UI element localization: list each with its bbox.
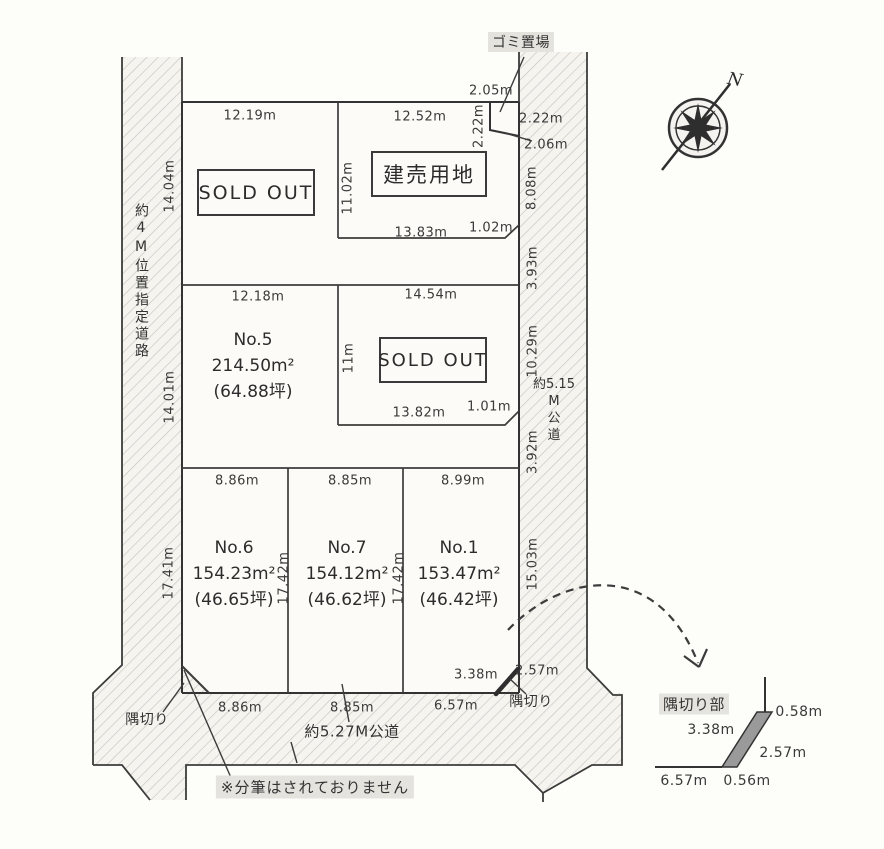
right-road-label-line2: M xyxy=(548,393,559,410)
sold-out-box-2: SOLD OUT xyxy=(379,337,487,383)
tateuri-box: 建売用地 xyxy=(371,151,487,197)
detail-dim-left: 3.38m xyxy=(687,722,734,738)
dim-right-edge-upper: 8.08m xyxy=(525,166,540,210)
detail-dim-top-right: 0.58m xyxy=(775,704,822,720)
right-road-label: 約5.15 M 公 道 xyxy=(533,376,575,444)
dim-no7-left: 17.42m xyxy=(277,552,292,605)
lot-no1-tsubo: (46.42坪) xyxy=(418,587,501,613)
dim-garbage-right: 2.22m xyxy=(519,112,563,127)
detail-dim-diagonal: 2.57m xyxy=(759,745,806,761)
lot-no7-tsubo: (46.62坪) xyxy=(306,587,389,613)
dim-no6-left: 17.41m xyxy=(162,547,177,600)
lot-no6-info: No.6 154.23m² (46.65坪) xyxy=(193,535,276,613)
dim-top-right-width: 12.52m xyxy=(394,110,447,125)
detail-title: 隅切り部 xyxy=(659,694,729,715)
right-road-label-line1: 約5.15 xyxy=(533,376,575,393)
lot-no5-area: 214.50m² xyxy=(212,353,295,379)
dim-mid-right-left: 11m xyxy=(342,343,357,374)
dim-no1-bottom: 6.57m xyxy=(434,699,478,714)
dim-garbage-bottom: 2.06m xyxy=(524,138,568,153)
dim-no6-top: 8.86m xyxy=(215,474,259,489)
dim-garbage-left: 2.22m xyxy=(472,104,487,148)
lot-no6-name: No.6 xyxy=(193,535,276,561)
dim-no7-top: 8.85m xyxy=(328,474,372,489)
corner-cut-right-label: 隅切り xyxy=(509,691,553,711)
lot-no6-area: 154.23m² xyxy=(193,561,276,587)
bottom-road-label: 約5.27M公道 xyxy=(304,721,399,742)
dim-no6-bottom: 8.86m xyxy=(218,701,262,716)
corner-cut-left-label: 隅切り xyxy=(125,709,169,729)
dim-right-edge-lower: 15.03m xyxy=(526,538,541,591)
dim-right-edge-mid: 10.29m xyxy=(526,325,541,378)
dim-mid-right-bottom: 13.82m xyxy=(393,406,446,421)
lot-no6-tsubo: (46.65坪) xyxy=(193,587,276,613)
sold-out-box-1: SOLD OUT xyxy=(197,169,315,216)
right-road-label-line3: 公 xyxy=(547,410,560,427)
dim-right-edge-gap1: 3.93m xyxy=(526,246,541,290)
lot-no7-area: 154.12m² xyxy=(306,561,389,587)
dim-no1-cut-top: 3.38m xyxy=(454,668,498,683)
site-plan-drawing: ゴミ置場 2.05m 2.22m 2.22m 2.06m 12.19m 12.5… xyxy=(0,0,884,849)
dim-tateuri-left: 11.02m xyxy=(341,162,356,215)
lot-no1-name: No.1 xyxy=(418,535,501,561)
dim-no5-top: 12.18m xyxy=(232,290,285,305)
lot-no5-info: No.5 214.50m² (64.88坪) xyxy=(212,327,295,405)
lot-no5-tsubo: (64.88坪) xyxy=(212,379,295,405)
dim-mid-right-corner: 1.01m xyxy=(467,400,511,415)
detail-dim-bottom-left: 6.57m xyxy=(660,773,707,789)
dim-mid-right-top: 14.54m xyxy=(405,288,458,303)
dim-no1-left: 17.42m xyxy=(392,552,407,605)
dim-garbage-top: 2.05m xyxy=(469,84,513,99)
compass-rose xyxy=(662,84,730,170)
left-road-label: 約4M位置指定道路 xyxy=(131,203,151,360)
lot-no7-info: No.7 154.12m² (46.62坪) xyxy=(306,535,389,613)
right-road-label-line4: 道 xyxy=(547,427,560,444)
detail-dim-bottom-right: 0.56m xyxy=(723,773,770,789)
lot-no1-area: 153.47m² xyxy=(418,561,501,587)
dim-tateuri-bottom: 13.83m xyxy=(395,226,448,241)
dim-tateuri-corner: 1.02m xyxy=(469,221,513,236)
dim-top-left-width: 12.19m xyxy=(224,109,277,124)
dim-no1-cut-right: 2.57m xyxy=(515,664,559,679)
lot-no1-info: No.1 153.47m² (46.42坪) xyxy=(418,535,501,613)
dim-no1-top: 8.99m xyxy=(441,474,485,489)
dim-left-edge-upper: 14.04m xyxy=(163,160,178,213)
lot-no7-name: No.7 xyxy=(306,535,389,561)
dim-left-edge-mid: 14.01m xyxy=(163,371,178,424)
dim-no7-bottom: 8.85m xyxy=(330,701,374,716)
lot-no5-name: No.5 xyxy=(212,327,295,353)
subdivision-note: ※分筆はされておりません xyxy=(216,776,414,799)
garbage-area-label: ゴミ置場 xyxy=(488,32,554,52)
